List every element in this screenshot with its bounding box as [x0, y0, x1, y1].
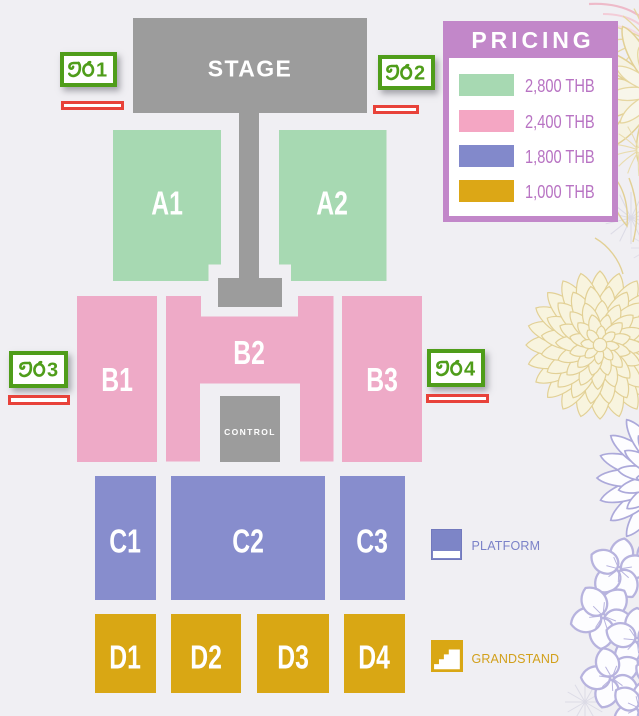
svg-text:3: 3	[47, 359, 58, 381]
svg-text:4: 4	[464, 358, 476, 380]
svg-text:1: 1	[96, 60, 107, 82]
svg-text:2: 2	[414, 62, 425, 84]
